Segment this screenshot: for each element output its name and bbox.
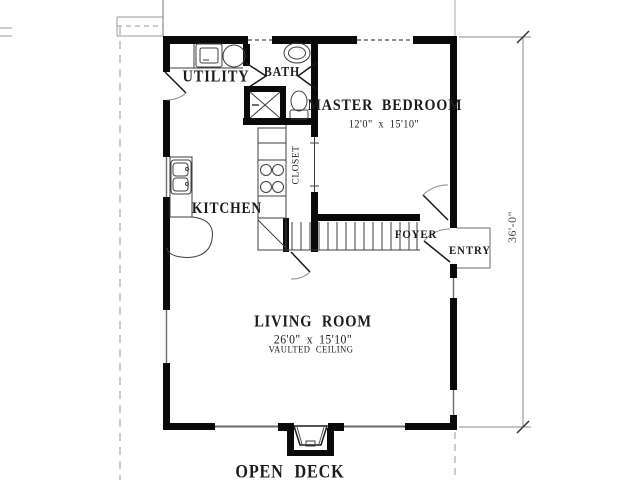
range-burners — [261, 165, 284, 193]
bath-sink — [284, 43, 310, 63]
entry-label: ENTRY — [449, 244, 491, 256]
kitchen-room-label: KITCHEN — [192, 201, 262, 217]
utility-fixtures — [170, 44, 245, 68]
dimension-line — [459, 31, 531, 433]
shower — [244, 86, 286, 124]
kitchen-peninsula-counter — [167, 217, 212, 257]
doors — [165, 63, 450, 279]
open-deck-label: OPEN DECK — [235, 463, 344, 480]
wall-closet-right-bottom — [311, 192, 318, 252]
foyer-room-label: FOYER — [395, 228, 437, 240]
kitchen-counter — [258, 128, 286, 250]
closet-door — [310, 137, 319, 192]
toilet — [291, 91, 307, 111]
wall-stairs-top — [317, 214, 420, 221]
bedroom-door — [423, 185, 448, 220]
bath-room-label: BATH — [264, 66, 300, 80]
wall-closet-right-top — [311, 125, 318, 137]
closet-label: CLOSET — [292, 146, 302, 185]
utility-room-label: UTILITY — [183, 68, 250, 85]
living-room-label: LIVING ROOM — [254, 313, 372, 330]
living-room-note: VAULTED CEILING — [269, 346, 354, 355]
kitchen-fixtures — [167, 128, 286, 257]
fireplace — [287, 426, 334, 456]
dryer — [223, 45, 245, 67]
overall-depth-dimension: 36'-0" — [506, 211, 518, 243]
firebox — [294, 426, 327, 445]
floor-plan-sheet: UTILITY BATH MASTER BEDROOM 12'0" x 15'1… — [0, 0, 640, 480]
dishwasher — [258, 220, 286, 248]
floor-plan-drawing — [0, 0, 640, 480]
master-bedroom-dimensions: 12'0" x 15'10" — [349, 119, 419, 131]
master-bedroom-label: MASTER BEDROOM — [308, 98, 463, 114]
stair-door — [291, 252, 310, 279]
